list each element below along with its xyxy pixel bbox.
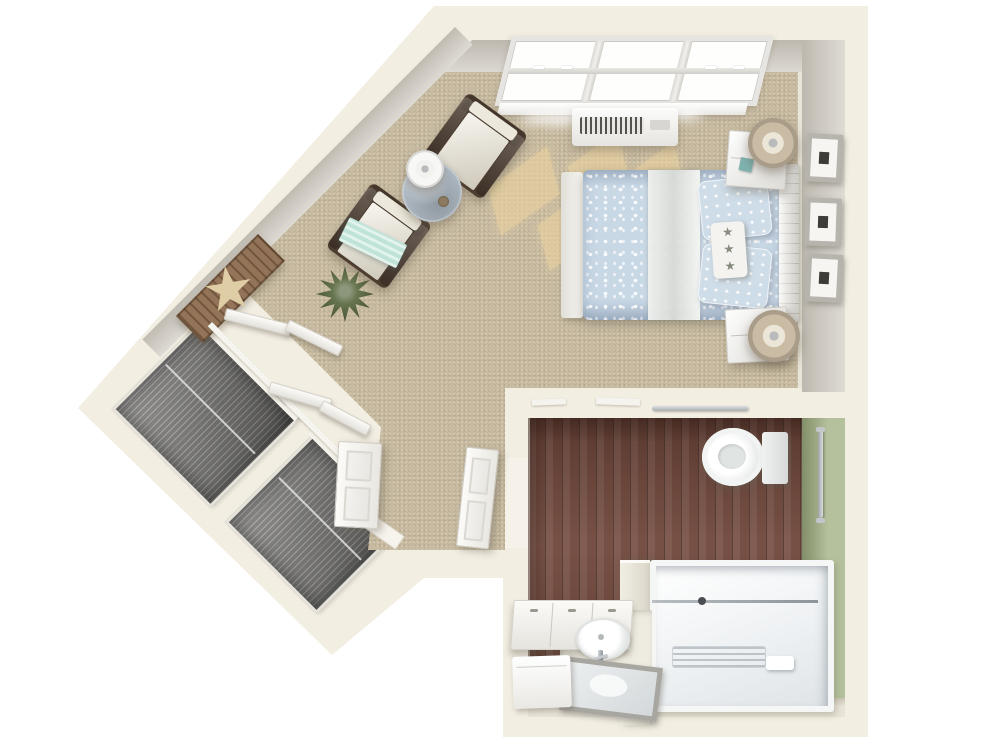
- coaster: [438, 196, 449, 207]
- door-track: [596, 397, 640, 406]
- grab-bar-flange: [816, 518, 825, 523]
- cabinet-handle: [530, 609, 538, 612]
- shower-glass-panel: [652, 600, 818, 603]
- grab-bar-flange: [816, 427, 825, 432]
- sink-drain: [598, 634, 604, 640]
- door-panel: [463, 500, 487, 542]
- window-rail: [508, 68, 761, 74]
- bed-runner: [648, 170, 700, 320]
- teal-decor-box: [738, 157, 753, 172]
- cabinet-seam: [549, 603, 553, 647]
- sash-handle: [705, 66, 717, 69]
- soap-dish: [766, 656, 794, 670]
- footboard: [561, 172, 583, 318]
- door-panel: [343, 486, 372, 521]
- entry-door: [334, 441, 382, 529]
- ptac-heat-ac-unit: [572, 108, 678, 146]
- picture-frame: [805, 133, 843, 183]
- ptac-vent: [650, 120, 670, 130]
- drum-lamp-upper: [748, 118, 798, 168]
- floor-plan: [0, 0, 1000, 750]
- shower-door-handle: [698, 597, 706, 605]
- hamper-lid: [516, 665, 566, 668]
- cabinet-handle: [568, 609, 576, 612]
- drum-lamp-lower: [748, 310, 800, 362]
- starfish-icon: [724, 244, 735, 255]
- table-lamp: [406, 150, 444, 188]
- mirror-reflection: [588, 672, 628, 698]
- closet-rod: [165, 364, 255, 454]
- door-track: [532, 398, 566, 405]
- triple-window: [495, 36, 774, 106]
- frame-photo: [819, 152, 830, 165]
- toilet-bowl-inner: [718, 444, 746, 469]
- picture-frame: [805, 253, 843, 303]
- hamper: [512, 655, 572, 709]
- vertical-grab-bar: [818, 430, 823, 518]
- starfish-icon: [725, 261, 736, 272]
- sash-handle: [561, 66, 573, 69]
- walk-in-shower: [650, 560, 834, 712]
- horizontal-grab-bar: [652, 406, 748, 411]
- sash-handle: [733, 66, 745, 69]
- starfish-icon: [722, 227, 733, 238]
- shower-drain: [672, 646, 766, 668]
- toilet-tank: [762, 432, 788, 484]
- door-panel: [468, 457, 491, 495]
- starfish-accent-pillow: [710, 221, 748, 279]
- door-panel: [345, 450, 373, 481]
- frame-photo: [819, 272, 830, 285]
- ptac-grille: [580, 117, 644, 134]
- cabinet-handle: [608, 609, 616, 612]
- frame-photo: [818, 216, 828, 228]
- picture-frame: [804, 197, 842, 246]
- sash-handle: [533, 66, 545, 69]
- bathroom-doorway: [505, 458, 528, 548]
